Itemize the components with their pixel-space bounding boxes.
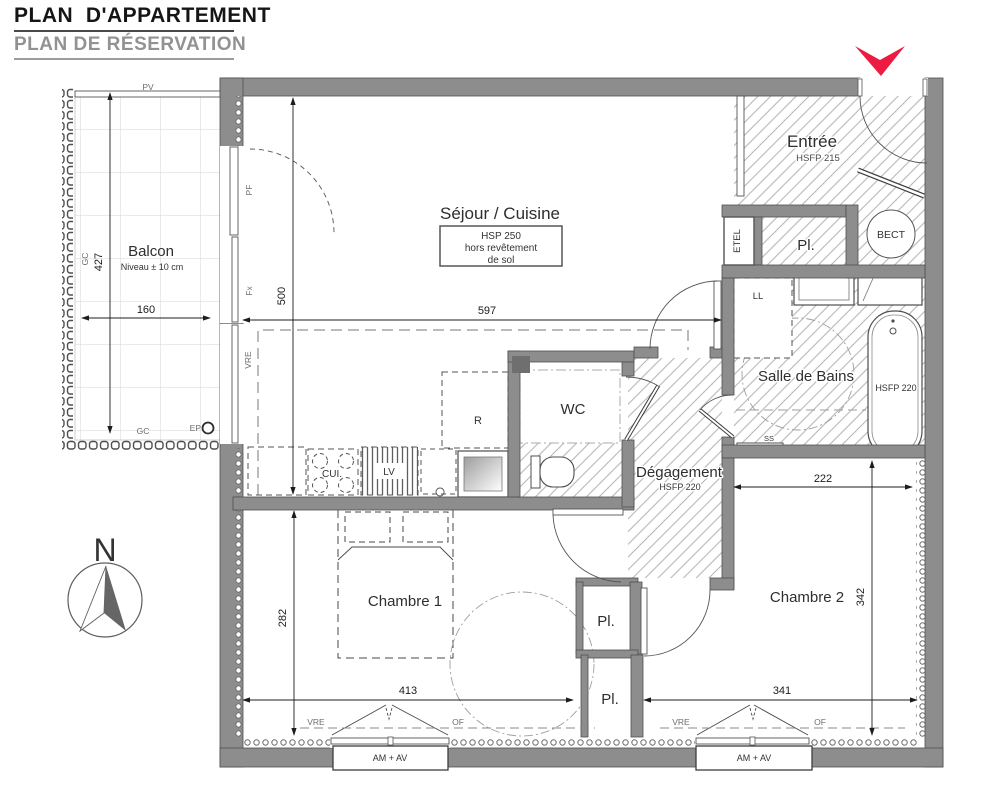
am-av-box-1: AM + AV	[333, 746, 448, 770]
sdb-hsfp-label: HSFP 220	[875, 383, 916, 393]
toilet	[531, 456, 574, 488]
room-label-degagement: Dégagement	[636, 464, 723, 481]
window-vre-sejour	[232, 325, 238, 443]
bect-circle: BECT	[867, 210, 915, 258]
sejour-deg-door-leaf	[714, 281, 721, 349]
ep-downpipe	[203, 423, 214, 434]
room-label-sdb: Salle de Bains	[758, 368, 854, 385]
room-label-chambre1: Chambre 1	[368, 593, 442, 610]
cooktop: CUI.	[308, 449, 358, 495]
room-label-sejour: Séjour / Cuisine	[440, 204, 560, 223]
page-title: PLAN D'APPARTEMENT	[14, 4, 234, 32]
balcony-railing-bottom	[62, 440, 233, 451]
dim-sejour-h: 500	[276, 287, 288, 305]
gc-left-label: GC	[80, 253, 90, 266]
balcon-level-note: Niveau ± 10 cm	[121, 262, 183, 272]
wall-bottom	[220, 748, 943, 767]
room-label-chambre2: Chambre 2	[770, 589, 844, 606]
counter	[248, 447, 306, 495]
am-av-box-2: AM + AV	[696, 746, 812, 770]
ch2-door-leaf	[641, 588, 647, 654]
dishwasher: LV	[361, 447, 418, 495]
washing-machine: LL	[734, 278, 792, 358]
window-pf	[230, 147, 238, 235]
pf-label: PF	[244, 185, 254, 196]
glazed-partition	[737, 96, 744, 196]
pv-label: PV	[142, 82, 154, 92]
wall-top	[220, 78, 860, 96]
of-ch2-label: OF	[814, 717, 826, 727]
bathtub: HSFP 220	[868, 311, 922, 457]
balcony-railing-left	[62, 87, 73, 449]
room-label-balcon: Balcon	[128, 243, 174, 260]
fridge: R	[442, 372, 508, 448]
title-block: PLAN D'APPARTEMENT PLAN DE RÉSERVATION	[14, 4, 234, 60]
dim-balcon-h: 427	[93, 253, 105, 271]
wall-right	[925, 78, 943, 767]
cui-label: CUI.	[322, 469, 342, 480]
ll-label: LL	[753, 291, 764, 302]
room-label-placard-entree: Pl.	[797, 237, 815, 254]
entree-hsfp-label: HSFP 215	[796, 153, 840, 164]
dim-ch1-h: 282	[277, 609, 289, 627]
dim-balcon-w: 160	[137, 304, 155, 316]
vre-ch2-label: VRE	[672, 717, 690, 727]
duct	[512, 356, 530, 373]
etel-label: ETEL	[732, 229, 743, 253]
turning-circle-ch1	[450, 592, 594, 736]
hsp-box: HSP 250 hors revêtement de sol	[440, 226, 562, 266]
balcony: EP GC GC PV Balcon Niveau ± 10 cm	[62, 82, 233, 451]
dim-ch1-w: 413	[399, 685, 417, 697]
room-label-placard2: Pl.	[601, 691, 619, 708]
dim-ch2-w: 341	[773, 685, 791, 697]
dim-sdb-w: 222	[814, 473, 832, 485]
ch1-door-leaf	[553, 509, 623, 515]
room-label-wc: WC	[561, 401, 586, 418]
hsp-line1: HSP 250	[481, 231, 521, 242]
room-label-entree: Entrée	[787, 132, 837, 151]
lv-label: LV	[383, 467, 395, 478]
ss-label: SS	[764, 434, 774, 443]
page-subtitle: PLAN DE RÉSERVATION	[14, 34, 234, 60]
compass: N	[68, 532, 142, 637]
am-av-1-label: AM + AV	[373, 753, 408, 763]
vre-ch1-label: VRE	[307, 717, 325, 727]
counter-small	[421, 449, 456, 494]
of-ch1-label: OF	[452, 717, 464, 727]
vre-sejour-label: VRE	[243, 351, 253, 369]
kitchen-sink	[458, 451, 508, 497]
gc-bottom-label: GC	[137, 426, 150, 436]
fridge-label: R	[474, 415, 482, 427]
compass-needle-outline	[80, 566, 106, 631]
bed	[338, 508, 453, 658]
bect-label: BECT	[877, 229, 906, 241]
floor-plan: EP GC GC PV Balcon Niveau ± 10 cm CUI. L…	[0, 0, 1002, 800]
hsp-line2: hors revêtement	[465, 243, 537, 254]
etel-box: ETEL	[724, 217, 754, 265]
fx-label: Fx	[244, 286, 254, 296]
compass-needle-fill	[104, 566, 126, 631]
window-fx	[232, 237, 238, 322]
dim-sejour-w: 597	[478, 305, 496, 317]
am-av-2-label: AM + AV	[737, 753, 772, 763]
ep-label: EP	[190, 423, 202, 433]
hsp-line3: de sol	[488, 255, 515, 266]
entrance-marker-icon	[855, 46, 905, 76]
degagement-hsfp-label: HSFP 220	[659, 482, 700, 492]
dim-ch2-h: 342	[855, 588, 867, 606]
room-label-placard1: Pl.	[597, 613, 615, 630]
